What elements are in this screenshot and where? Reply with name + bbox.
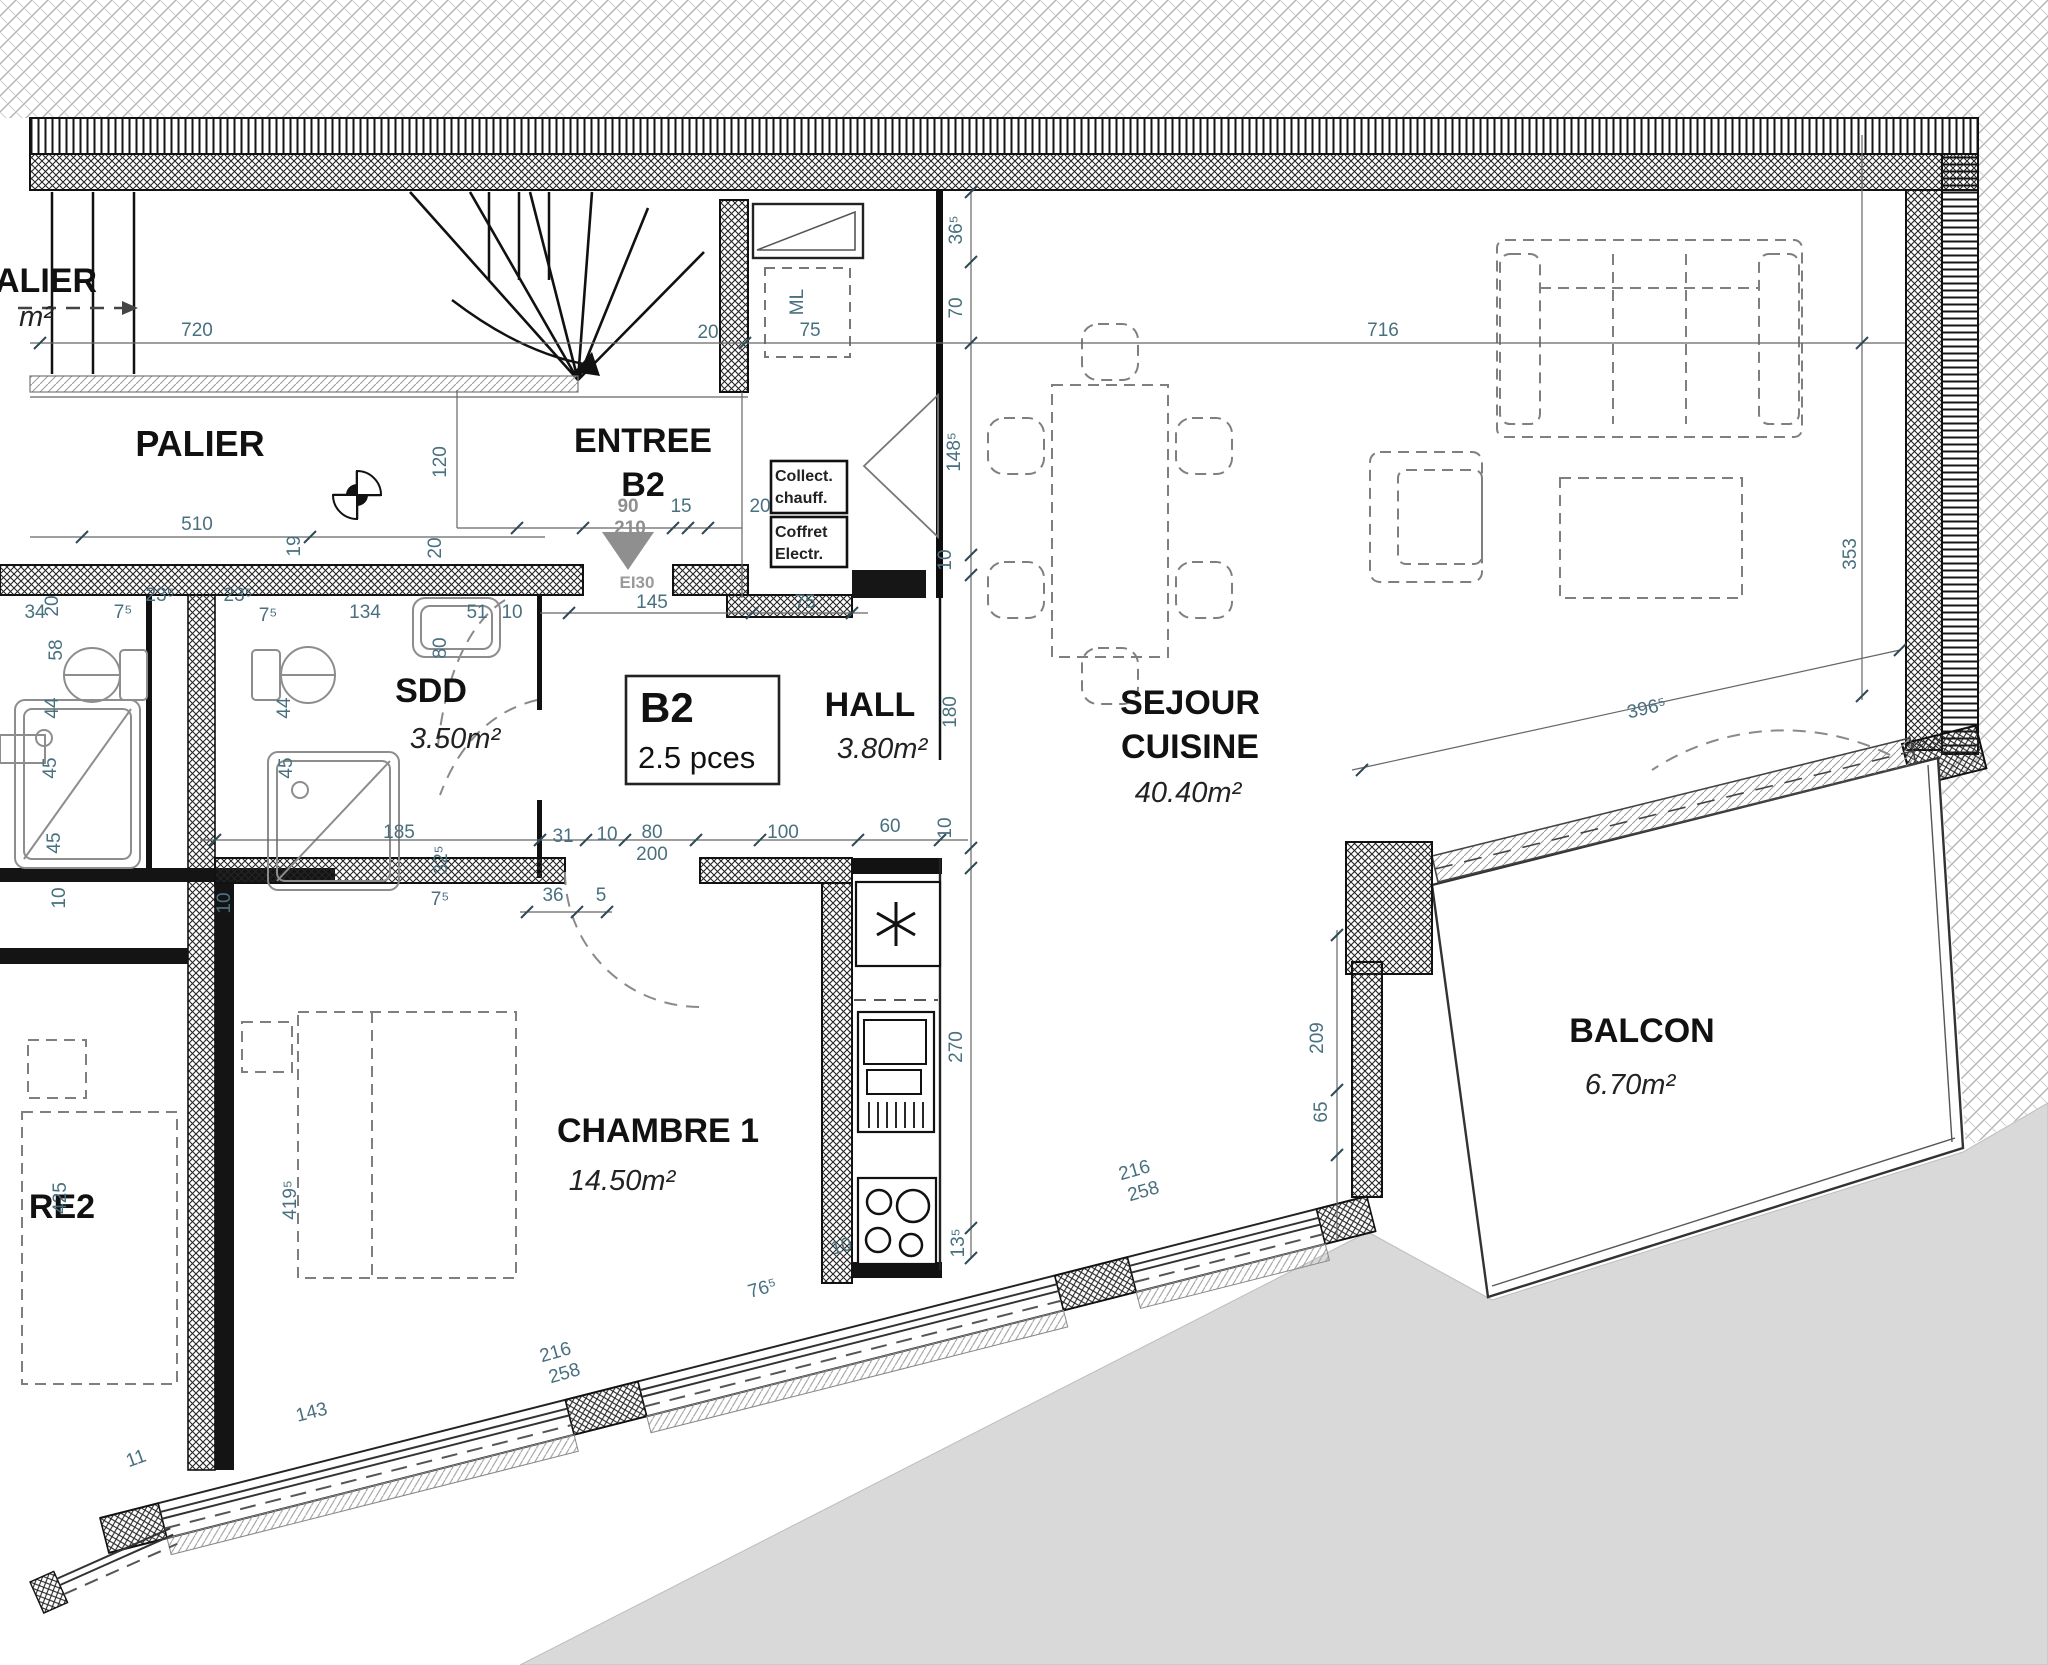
dimension-label: 20 bbox=[749, 496, 770, 517]
dimension-label: 45 bbox=[276, 757, 297, 778]
dimension-label: 23⁵ bbox=[223, 585, 252, 606]
dimension-label: 148⁵ bbox=[944, 432, 965, 472]
dimension-label: 7⁵ bbox=[114, 602, 132, 623]
dimension-label: 10 bbox=[596, 824, 617, 845]
dimension-label: 90 bbox=[617, 496, 638, 517]
balcon-label: BALCON bbox=[1569, 1012, 1714, 1050]
dimension-label: 100 bbox=[767, 822, 799, 843]
dimension-label: 10 bbox=[49, 887, 70, 908]
dimension-label: 145 bbox=[636, 592, 668, 613]
dimension-label: 75 bbox=[799, 320, 820, 341]
dimension-label: 19 bbox=[284, 535, 305, 556]
sejour-area: 40.40m² bbox=[1135, 777, 1243, 809]
dimension-label: 7⁵ bbox=[431, 889, 449, 910]
palier-label: PALIER bbox=[135, 423, 264, 464]
cooktop bbox=[858, 1178, 936, 1264]
stair-landing-strip bbox=[30, 376, 578, 392]
dimension-label: 5 bbox=[596, 885, 607, 906]
hall-label: HALL bbox=[825, 686, 916, 724]
dimension-label: 510 bbox=[181, 514, 213, 535]
dimension-label: 209 bbox=[1307, 1022, 1328, 1054]
dimension-label: 134 bbox=[349, 602, 381, 623]
dimension-label: 353 bbox=[1840, 538, 1861, 570]
coffret-electr-line2: Electr. bbox=[775, 546, 823, 563]
chambre1-label: CHAMBRE 1 bbox=[557, 1112, 759, 1150]
dimension-label: 15 bbox=[670, 496, 691, 517]
chambre1-area: 14.50m² bbox=[569, 1165, 677, 1197]
floorplan-drawing: Collect. chauff. Coffret Electr. EI30 bbox=[0, 0, 2048, 1665]
dimension-label: 75 bbox=[794, 592, 815, 613]
floorplan-page: Collect. chauff. Coffret Electr. EI30 bbox=[0, 0, 2048, 1665]
dimension-label: 23⁵ bbox=[145, 585, 174, 606]
dimension-label: 10 bbox=[501, 602, 522, 623]
dimension-label: 44 bbox=[42, 697, 63, 719]
dimension-label: 200 bbox=[636, 844, 668, 865]
unit-size: 2.5 pces bbox=[638, 740, 755, 775]
dimension-label: 270 bbox=[946, 1031, 967, 1063]
dimension-label: 10 bbox=[935, 549, 956, 570]
dimension-label: 51 bbox=[466, 602, 487, 623]
dimension-label: 44 bbox=[274, 697, 295, 719]
collect-chauff-line1: Collect. bbox=[775, 468, 833, 485]
sejour-label-line2: CUISINE bbox=[1121, 728, 1259, 766]
dimension-label: 20 bbox=[42, 595, 63, 616]
palier-cut-area: m² bbox=[19, 301, 54, 333]
balcon-area: 6.70m² bbox=[1585, 1069, 1677, 1101]
dimension-label: 419⁵ bbox=[280, 1180, 301, 1220]
fire-rating-label: EI30 bbox=[620, 573, 655, 592]
dimension-label: 31 bbox=[552, 826, 573, 847]
dimension-label: 70 bbox=[946, 297, 967, 318]
dimension-label: 10 bbox=[214, 892, 235, 913]
dimension-label: 80 bbox=[430, 637, 451, 658]
sdd-area: 3.50m² bbox=[410, 723, 502, 755]
oven-vents bbox=[869, 1102, 923, 1128]
collect-chauff-line2: chauff. bbox=[775, 490, 827, 507]
dimension-label: 45 bbox=[40, 757, 61, 778]
dimension-label: 20 bbox=[425, 537, 446, 558]
coffret-electr-line1: Coffret bbox=[775, 524, 828, 541]
sdd-label: SDD bbox=[395, 672, 467, 710]
dimension-label: 13⁵ bbox=[948, 1228, 969, 1257]
dimension-label: 10 bbox=[935, 817, 956, 838]
dimension-label: 425 bbox=[50, 1182, 71, 1214]
dimension-label: 20 bbox=[697, 322, 718, 343]
dimension-label: 36 bbox=[542, 885, 563, 906]
balcony-corner-wall bbox=[1346, 842, 1432, 974]
dimension-label: 180 bbox=[940, 696, 961, 728]
balcony-left-wall bbox=[1352, 962, 1382, 1197]
dimension-label: 720 bbox=[181, 320, 213, 341]
dimension-label: 120 bbox=[430, 446, 451, 478]
kitchen-block bbox=[852, 858, 942, 1278]
dimension-label: ML bbox=[787, 289, 808, 315]
dimension-label: 58 bbox=[46, 639, 67, 660]
unit-id: B2 bbox=[640, 684, 694, 731]
dimension-label: 185 bbox=[383, 822, 415, 843]
palier-cut-label: ALIER bbox=[0, 262, 97, 300]
dimension-label: 65 bbox=[1311, 1101, 1332, 1122]
dimension-label: 36⁵ bbox=[946, 215, 967, 244]
dimension-label: 7⁵ bbox=[259, 605, 277, 626]
sejour-label-line1: SEJOUR bbox=[1120, 684, 1260, 722]
dimension-label: 32⁵ bbox=[431, 845, 452, 874]
dimension-label: 716 bbox=[1367, 320, 1399, 341]
dimension-label: 45 bbox=[44, 832, 65, 853]
dimension-label: 80 bbox=[641, 822, 662, 843]
dimension-label: 60 bbox=[879, 816, 900, 837]
unit-id-box: B2 2.5 pces bbox=[626, 676, 779, 784]
entree-label-line1: ENTREE bbox=[574, 422, 712, 460]
hall-area: 3.80m² bbox=[837, 733, 929, 765]
dimension-label: 210 bbox=[614, 518, 646, 539]
